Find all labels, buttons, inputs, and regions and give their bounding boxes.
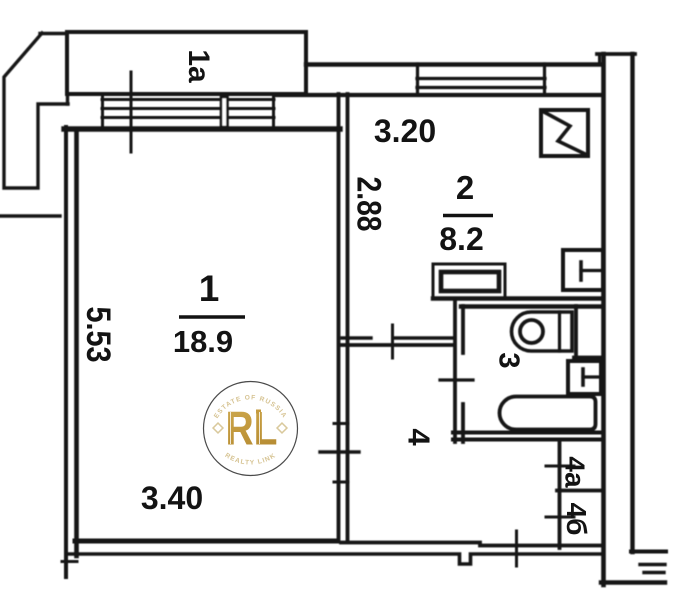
svg-text:3: 3	[493, 352, 525, 368]
svg-text:1а: 1а	[182, 49, 215, 83]
svg-text:3.40: 3.40	[141, 480, 203, 516]
svg-text:4: 4	[402, 428, 437, 446]
svg-text:RL: RL	[226, 402, 278, 455]
svg-text:18.9: 18.9	[173, 324, 233, 359]
svg-text:2: 2	[456, 169, 474, 206]
svg-text:3.20: 3.20	[374, 113, 436, 149]
svg-text:5.53: 5.53	[79, 307, 117, 363]
svg-text:8.2: 8.2	[439, 221, 483, 257]
svg-text:1: 1	[199, 268, 220, 309]
svg-text:4а: 4а	[560, 456, 591, 488]
svg-text:4б: 4б	[561, 503, 592, 536]
svg-text:2.88: 2.88	[350, 177, 388, 232]
